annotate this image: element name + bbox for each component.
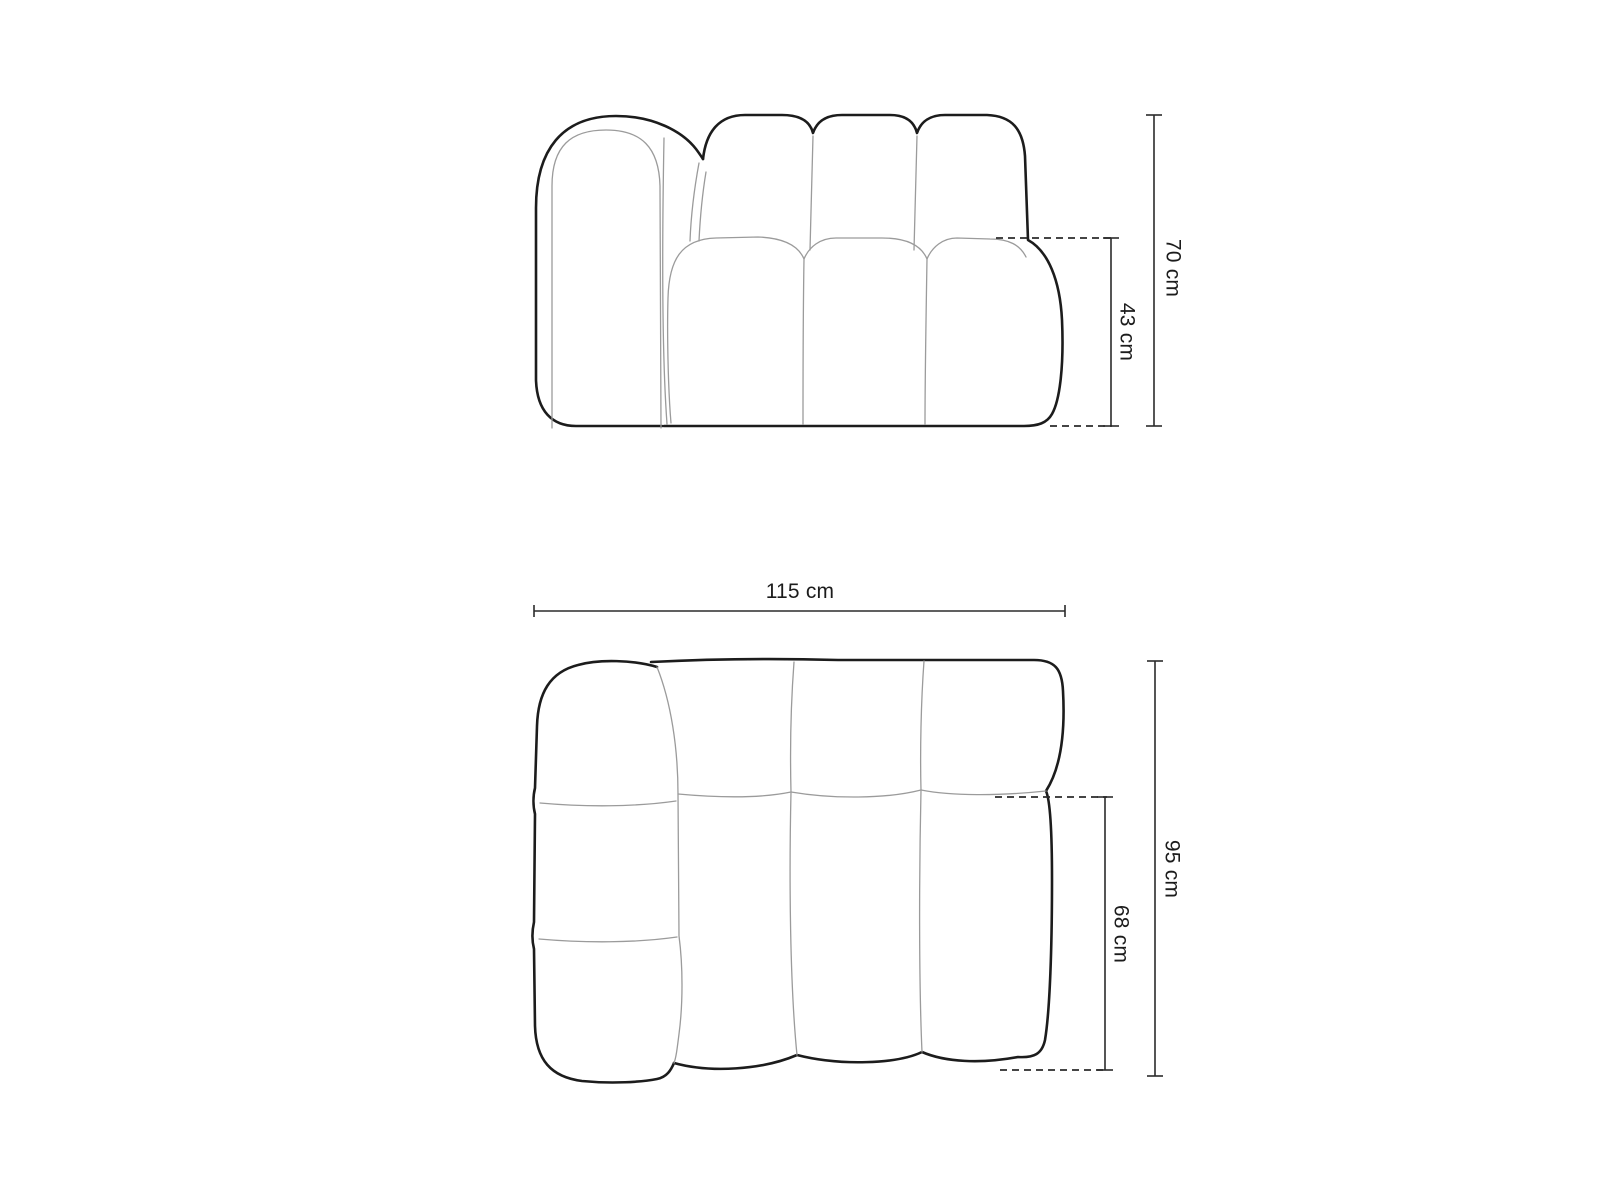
top-view: 115 cm 95 cm 68 cm: [533, 580, 1184, 1082]
front-seat-divider-2: [925, 259, 927, 424]
front-armrest-back-seam-2: [699, 172, 706, 241]
front-view: 70 cm 43 cm: [536, 115, 1185, 428]
top-view-seams: [539, 661, 1046, 1063]
sofa-dimension-drawing: 70 cm 43 cm: [0, 0, 1600, 1200]
total-depth-label: 95 cm: [1161, 840, 1184, 898]
front-backrest-divider-2: [914, 136, 917, 250]
total-height-label: 70 cm: [1162, 239, 1185, 297]
front-armrest-side-seam: [663, 138, 667, 424]
top-seat-divider-1: [790, 792, 797, 1055]
front-armrest-inner-seam: [552, 130, 661, 428]
front-body-outline: [664, 115, 1063, 426]
front-view-outlines: [536, 115, 1063, 426]
diagram-canvas: 70 cm 43 cm: [0, 0, 1600, 1200]
top-view-dimension-lines: [534, 605, 1163, 1076]
front-seat-cushions-seam: [668, 237, 1026, 423]
seat-height-label: 43 cm: [1116, 303, 1139, 361]
total-width-label: 115 cm: [766, 580, 835, 603]
front-armrest-outline: [536, 116, 703, 426]
top-view-outlines: [533, 659, 1064, 1082]
front-backrest-divider-1: [810, 136, 813, 250]
top-backrest-divider-2: [921, 661, 924, 790]
top-body-outline: [651, 659, 1064, 1069]
front-view-seams: [552, 130, 1026, 428]
top-view-labels: 115 cm 95 cm 68 cm: [766, 580, 1184, 963]
front-view-dimension-lines: [1103, 115, 1162, 426]
seat-depth-label: 68 cm: [1110, 905, 1133, 963]
front-armrest-back-seam-1: [690, 163, 699, 241]
top-backrest-seat-seam: [678, 790, 1046, 797]
top-armrest-divider-2: [539, 937, 677, 942]
top-backrest-divider-1: [791, 662, 794, 792]
front-view-labels: 70 cm 43 cm: [1116, 239, 1185, 361]
front-seat-divider-1: [803, 259, 804, 424]
top-seat-divider-2: [920, 790, 922, 1052]
top-armrest-outline: [533, 661, 675, 1082]
front-view-extension-lines: [996, 238, 1112, 426]
top-armrest-body-seam: [657, 667, 682, 1063]
top-armrest-divider-1: [540, 801, 676, 806]
